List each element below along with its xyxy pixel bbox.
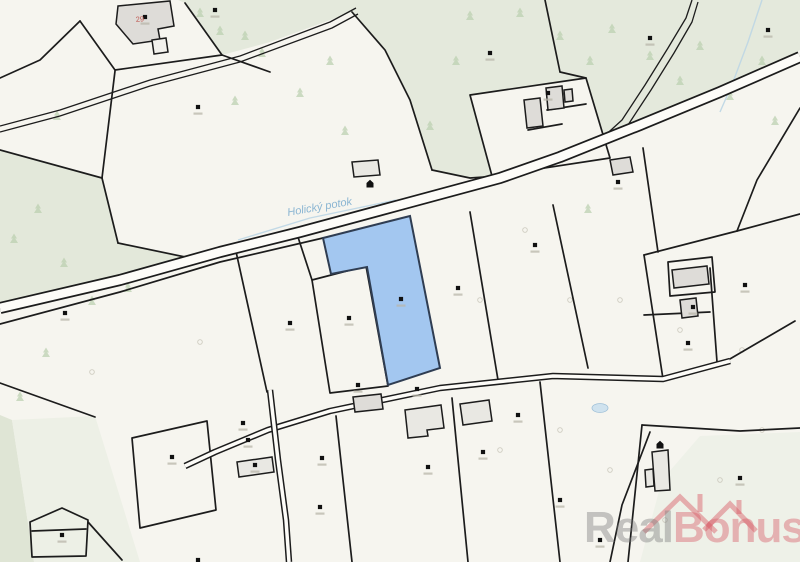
- parcel-boundary: [644, 255, 663, 379]
- cadastral-map: Holický potok 29: [0, 0, 800, 562]
- parcel-marker: [743, 283, 747, 287]
- highlighted-parcel-layer: [323, 216, 440, 385]
- house-symbol: [367, 180, 374, 188]
- parcel-marker: [533, 243, 537, 247]
- parcel-marker: [546, 91, 550, 95]
- parcel-boundary: [628, 425, 642, 562]
- parcel-boundary: [0, 21, 80, 78]
- parcel-marker: [241, 421, 245, 425]
- parcel-marker: [691, 305, 695, 309]
- pond: [592, 404, 608, 413]
- parcel-marker: [516, 413, 520, 417]
- parcel-marker: [253, 463, 257, 467]
- parcel-marker: [415, 387, 419, 391]
- parcel-marker: [320, 456, 324, 460]
- parcel-boundary: [80, 21, 115, 70]
- building-footprint: [546, 86, 564, 110]
- parcel-marker: [481, 450, 485, 454]
- parcel-boundary: [336, 416, 352, 562]
- conifer-tree-symbol: [341, 126, 349, 136]
- parcel-marker: [347, 316, 351, 320]
- parcel-number-microtext: [58, 541, 67, 543]
- parcel-marker: [686, 341, 690, 345]
- scrub-symbol: [558, 428, 563, 433]
- parcel-number-microtext: [736, 484, 745, 486]
- building-footprint: [524, 98, 543, 128]
- parcel-boundary: [540, 382, 560, 562]
- house-symbol: [657, 441, 664, 449]
- parcel-number-microtext: [345, 324, 354, 326]
- parcel-boundary: [737, 108, 800, 231]
- parcel-number-microtext: [211, 16, 220, 18]
- cadastral-map-viewport[interactable]: Holický potok 29 RealBonus.cz: [0, 0, 800, 562]
- parcel-number-microtext: [596, 546, 605, 548]
- parcel-number-microtext: [531, 251, 540, 253]
- parcel-boundary: [723, 321, 795, 363]
- scrub-symbol: [678, 328, 683, 333]
- scrub-symbol: [523, 228, 528, 233]
- parcel-number-microtext: [168, 463, 177, 465]
- parcel-number-microtext: [684, 349, 693, 351]
- parcel-number-microtext: [194, 113, 203, 115]
- parcel-number-microtext: [741, 291, 750, 293]
- pond-shape: [592, 404, 608, 413]
- parcel-number-microtext: [614, 188, 623, 190]
- parcel-marker: [63, 311, 67, 315]
- parcel-boundary: [642, 425, 800, 431]
- parcel-number-microtext: [244, 446, 253, 448]
- road-surface: [270, 390, 289, 562]
- parcel-marker: [213, 8, 217, 12]
- parcel-boundary: [644, 231, 737, 255]
- parcel-boundary: [470, 212, 498, 380]
- parcel-number-microtext: [764, 36, 773, 38]
- conifer-tree-symbol: [16, 392, 24, 402]
- parcel-boundary: [102, 71, 115, 178]
- building-footprint: [352, 160, 380, 177]
- parcel-marker: [288, 321, 292, 325]
- parcel-boundary: [132, 421, 216, 528]
- building-footprint: [152, 38, 168, 54]
- parcel-number-microtext: [424, 473, 433, 475]
- parcel-number-microtext: [689, 313, 698, 315]
- scrub-symbol: [498, 448, 503, 453]
- conifer-tree-symbol: [296, 88, 304, 98]
- parcel-number-microtext: [239, 429, 248, 431]
- parcel-marker: [558, 498, 562, 502]
- parcel-number-microtext: [544, 99, 553, 101]
- parcel-marker: [196, 558, 200, 562]
- building-footprint: [652, 450, 670, 491]
- parcel-marker: [356, 383, 360, 387]
- building-footprint: [610, 157, 633, 175]
- parcel-boundary: [222, 55, 270, 72]
- highlighted-parcel[interactable]: [323, 216, 440, 385]
- building-footprint: [672, 266, 709, 288]
- parcel-number-microtext: [413, 395, 422, 397]
- scrub-symbol: [608, 468, 613, 473]
- parcel-marker: [648, 36, 652, 40]
- parcel-boundary: [235, 247, 267, 392]
- parcel-marker: [399, 297, 403, 301]
- parcel-marker: [766, 28, 770, 32]
- parcel-number-microtext: [61, 319, 70, 321]
- parcel-marker: [488, 51, 492, 55]
- conifer-tree-symbol: [326, 56, 334, 66]
- parcel-number-microtext: [646, 44, 655, 46]
- scrub-symbol: [90, 370, 95, 375]
- parcel-marker: [246, 438, 250, 442]
- parcel-number-microtext: [354, 391, 363, 393]
- conifer-tree-symbol: [584, 204, 592, 214]
- parcel-marker: [60, 533, 64, 537]
- building-footprint: [460, 400, 492, 425]
- conifer-tree-symbol: [771, 116, 779, 126]
- parcel-boundary: [553, 205, 588, 368]
- parcel-number-microtext: [514, 421, 523, 423]
- scrub-symbol: [618, 298, 623, 303]
- building-footprint: [564, 89, 573, 102]
- parcel-number-microtext: [556, 506, 565, 508]
- parcel-boundary: [644, 312, 710, 315]
- parcel-number-microtext: [479, 458, 488, 460]
- parcel-boundary: [643, 148, 658, 252]
- parcel-number-microtext: [486, 59, 495, 61]
- scrub-symbol: [198, 340, 203, 345]
- parcel-marker: [738, 476, 742, 480]
- parcel-marker: [318, 505, 322, 509]
- scrub-symbol: [568, 298, 573, 303]
- building-number-label: 29: [135, 14, 144, 24]
- parcel-marker: [426, 465, 430, 469]
- parcel-number-microtext: [286, 329, 295, 331]
- parcel-marker: [196, 105, 200, 109]
- parcel-number-microtext: [316, 513, 325, 515]
- conifer-tree-symbol: [231, 96, 239, 106]
- parcel-boundary: [737, 214, 800, 231]
- parcel-boundary: [0, 383, 95, 417]
- parcel-boundary: [115, 55, 222, 70]
- building-footprint: [680, 298, 698, 318]
- building-footprint: [353, 394, 383, 412]
- conifer-tree-symbol: [42, 348, 50, 358]
- parcel-number-microtext: [397, 305, 406, 307]
- building-footprint: [645, 469, 654, 487]
- parcel-marker: [616, 180, 620, 184]
- building-footprint: [405, 405, 444, 438]
- parcel-marker: [598, 538, 602, 542]
- parcel-number-microtext: [318, 464, 327, 466]
- scrub-symbol: [478, 298, 483, 303]
- parcel-marker: [170, 455, 174, 459]
- parcel-number-microtext: [454, 294, 463, 296]
- parcel-number-microtext: [251, 471, 260, 473]
- parcel-marker: [456, 286, 460, 290]
